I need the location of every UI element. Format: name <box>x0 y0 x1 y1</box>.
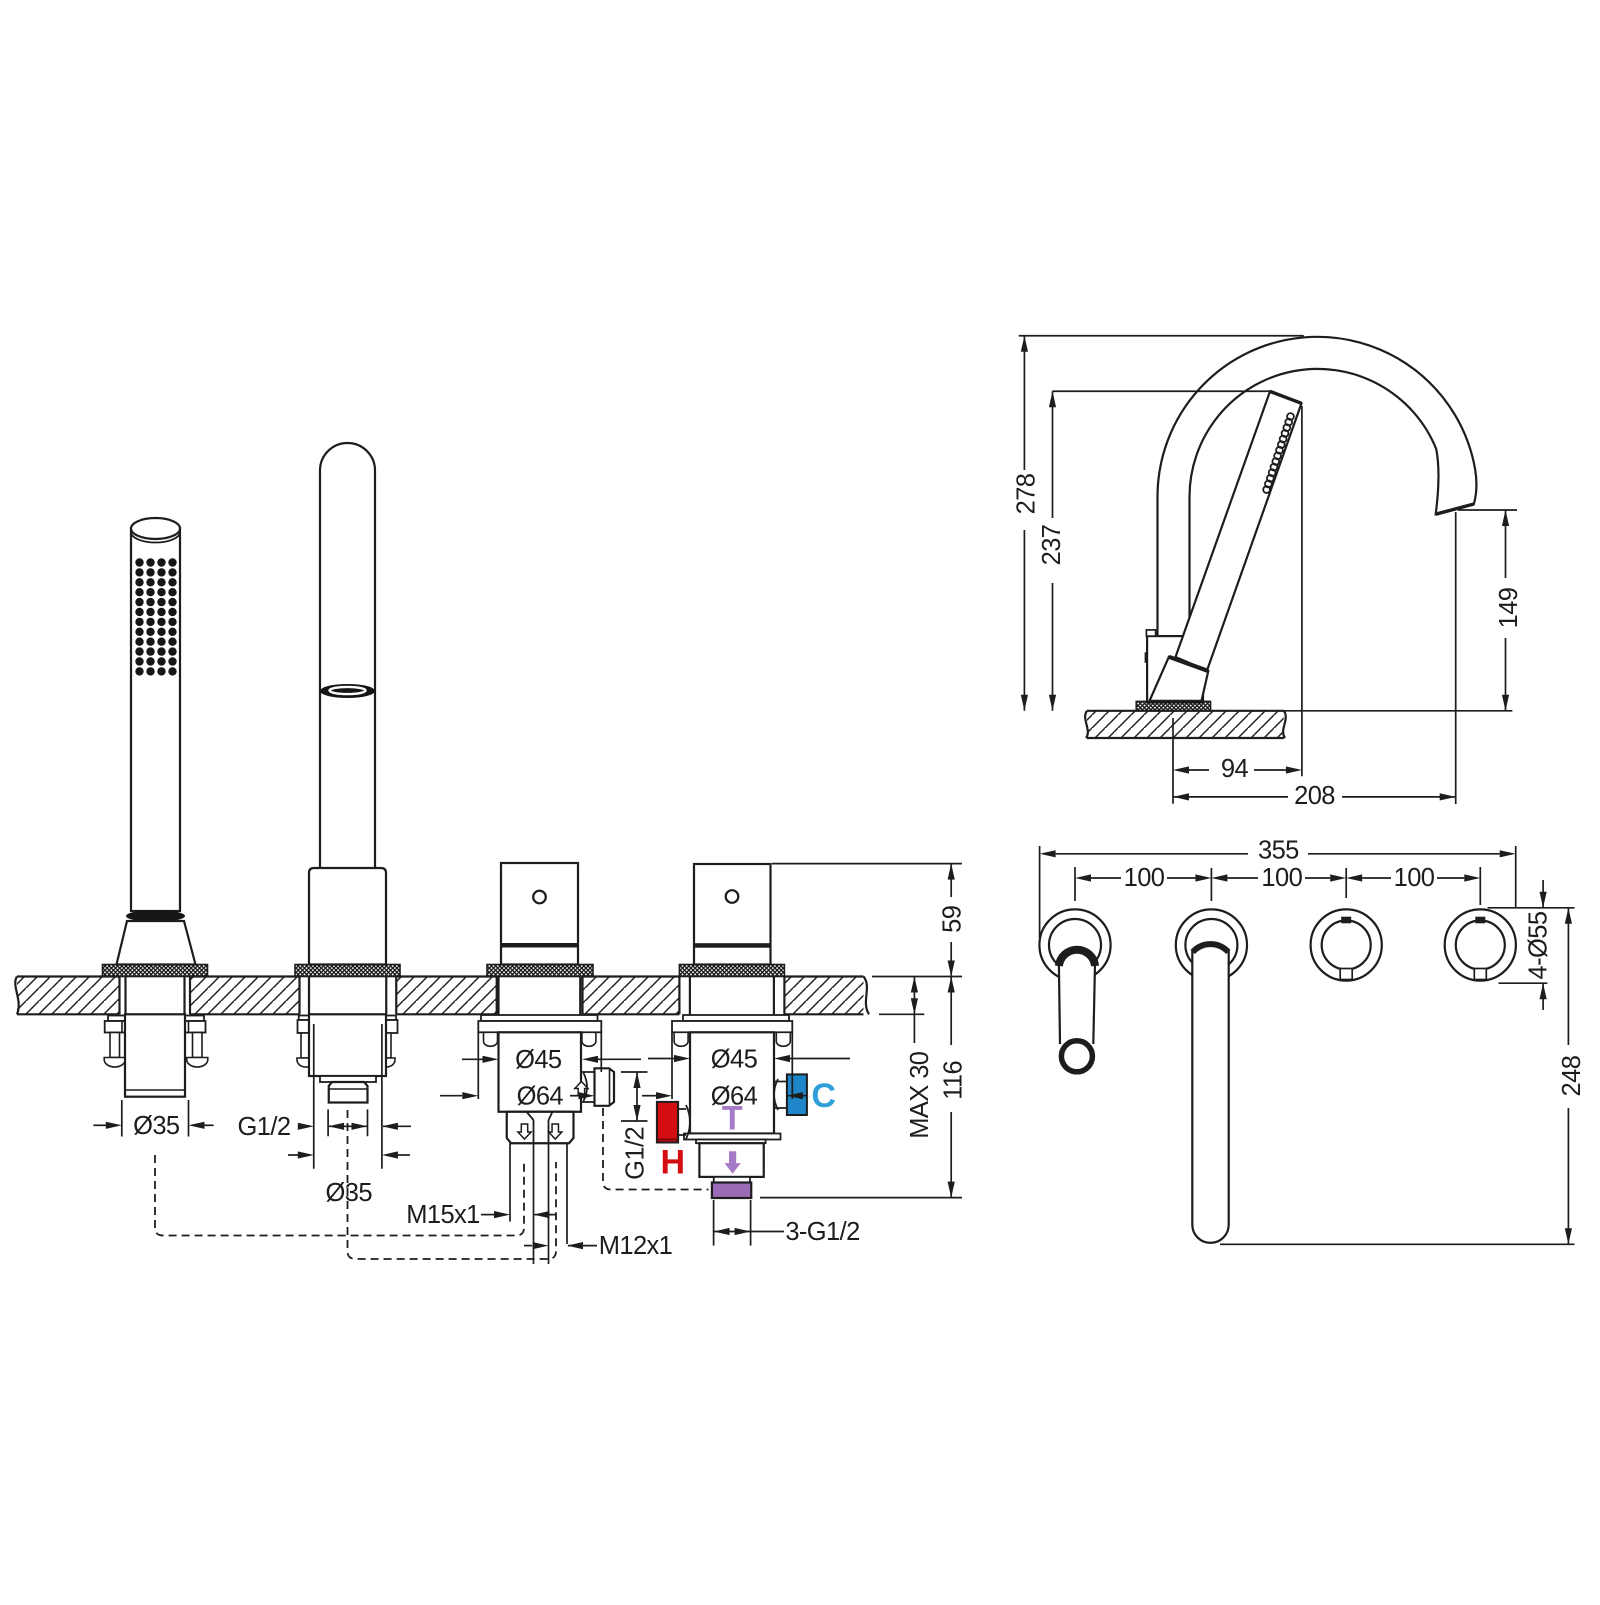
svg-text:C: C <box>811 1077 835 1115</box>
svg-text:100: 100 <box>1124 864 1165 892</box>
svg-text:116: 116 <box>940 1061 968 1100</box>
svg-text:G1/2: G1/2 <box>622 1127 650 1180</box>
svg-text:M15x1: M15x1 <box>406 1201 480 1229</box>
svg-text:MAX 30: MAX 30 <box>906 1051 934 1139</box>
svg-text:355: 355 <box>1258 837 1299 865</box>
svg-text:149: 149 <box>1495 588 1523 629</box>
svg-text:100: 100 <box>1261 864 1302 892</box>
svg-text:G1/2: G1/2 <box>238 1113 291 1141</box>
svg-text:59: 59 <box>939 906 967 933</box>
svg-text:Ø35: Ø35 <box>133 1112 180 1140</box>
svg-text:Ø64: Ø64 <box>517 1083 564 1111</box>
svg-text:T: T <box>722 1099 743 1137</box>
svg-text:3-G1/2: 3-G1/2 <box>785 1218 859 1246</box>
svg-text:208: 208 <box>1294 782 1335 810</box>
svg-text:100: 100 <box>1394 864 1435 892</box>
svg-text:278: 278 <box>1013 473 1041 514</box>
svg-text:248: 248 <box>1558 1055 1586 1096</box>
svg-text:Ø45: Ø45 <box>711 1046 758 1074</box>
svg-text:M12x1: M12x1 <box>599 1232 673 1260</box>
svg-text:4-Ø55: 4-Ø55 <box>1525 911 1553 979</box>
svg-text:237: 237 <box>1038 525 1066 566</box>
svg-text:Ø45: Ø45 <box>515 1046 562 1074</box>
svg-text:94: 94 <box>1221 755 1249 783</box>
svg-text:H: H <box>661 1144 685 1182</box>
svg-text:Ø35: Ø35 <box>326 1179 373 1207</box>
